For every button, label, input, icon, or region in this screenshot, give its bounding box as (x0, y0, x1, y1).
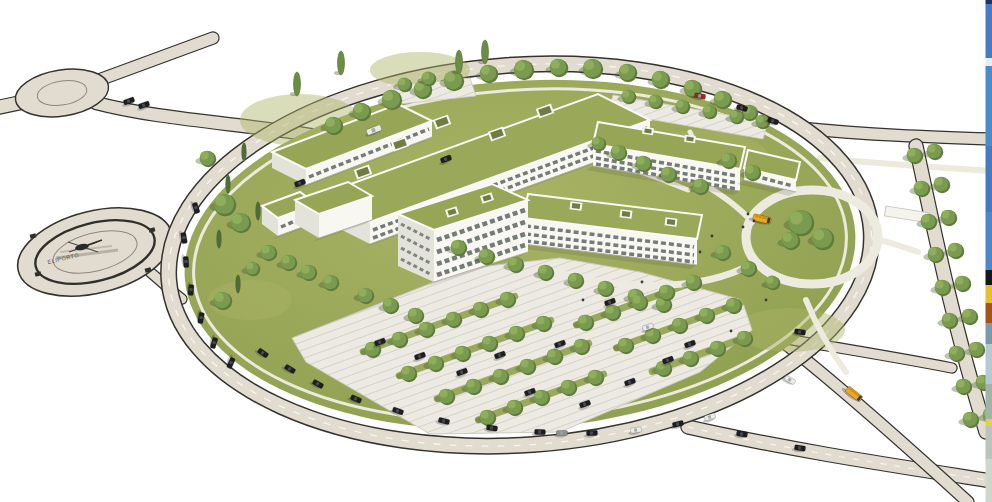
tree-highlight (579, 316, 587, 324)
pedestrian (765, 299, 768, 302)
tree-highlight (398, 78, 405, 85)
cypress-tree (225, 175, 230, 194)
pedestrian (582, 299, 585, 302)
tree-highlight (452, 241, 460, 249)
tree-highlight (383, 91, 393, 101)
tree-highlight (246, 262, 253, 269)
pedestrian (699, 251, 702, 254)
edge-strip-segment (986, 384, 992, 419)
tree-highlight (422, 72, 429, 79)
pedestrian (742, 226, 745, 229)
tree-highlight (950, 347, 958, 355)
tree-highlight (633, 296, 641, 304)
cypress-tree (255, 202, 260, 221)
tree-highlight (384, 299, 392, 307)
tree-highlight (956, 277, 964, 285)
edge-strip-segment (986, 4, 992, 58)
tree-highlight (746, 166, 754, 174)
tree-highlight (612, 146, 620, 154)
tree-highlight (715, 92, 724, 101)
poplar-tree (482, 40, 489, 64)
tree-highlight (537, 317, 545, 325)
tree-highlight (447, 313, 455, 321)
tree-highlight (402, 367, 410, 375)
tree-highlight (510, 327, 518, 335)
tree-highlight (700, 309, 708, 317)
tree-highlight (711, 342, 719, 350)
tree-highlight (813, 229, 824, 240)
tree-highlight (420, 323, 428, 331)
tree-highlight (584, 60, 594, 70)
tree-highlight (366, 343, 374, 351)
tree-highlight (521, 360, 529, 368)
edge-strip-segment (986, 426, 992, 459)
poplar-tree (294, 72, 301, 96)
tree-highlight (509, 258, 517, 266)
edge-strip-segment (986, 419, 992, 426)
skylight (570, 201, 583, 210)
tree-highlight (694, 180, 702, 188)
poplar-tree (338, 51, 345, 75)
tree-highlight (282, 256, 290, 264)
tree-highlight (703, 105, 710, 112)
tree-highlight (467, 380, 475, 388)
tree-highlight (354, 104, 363, 113)
tree-highlight (215, 195, 226, 206)
tree-highlight (922, 215, 930, 223)
cypress-tree (235, 275, 240, 294)
tree-highlight (637, 157, 645, 165)
edge-strip (986, 0, 992, 502)
tree-highlight (662, 168, 670, 176)
edge-strip-segment (986, 146, 992, 212)
cypress-tree (216, 230, 221, 249)
pedestrian (641, 281, 644, 284)
tree-highlight (685, 81, 694, 90)
tree-highlight (515, 61, 525, 71)
hospital-campus-aerial-rendering: ELIPORTO (0, 0, 992, 502)
tree-highlight (575, 340, 583, 348)
tree-highlight (653, 72, 662, 81)
skylight (665, 217, 678, 226)
tree-highlight (326, 118, 335, 127)
tree-highlight (936, 281, 944, 289)
tree-highlight (957, 380, 965, 388)
tree-highlight (393, 333, 401, 341)
tree-highlight (684, 352, 692, 360)
tree-highlight (649, 95, 656, 102)
tree-highlight (687, 276, 695, 284)
tree-highlight (201, 152, 209, 160)
tree-highlight (562, 381, 570, 389)
rendering-canvas: ELIPORTO (0, 0, 992, 502)
pedestrian (753, 220, 756, 223)
tree-highlight (942, 211, 950, 219)
tree-highlight (622, 90, 629, 97)
tree-highlight (481, 66, 490, 75)
tree-highlight (722, 154, 730, 162)
edge-strip-segment (986, 323, 992, 344)
tree-highlight (539, 266, 547, 274)
cypress-tree (241, 143, 246, 162)
edge-strip-segment (986, 459, 992, 502)
tree-highlight (727, 299, 735, 307)
tree-highlight (964, 413, 972, 421)
tree-highlight (943, 314, 951, 322)
tree-highlight (977, 376, 985, 384)
tree-highlight (232, 214, 242, 224)
tree-highlight (589, 371, 597, 379)
tree-highlight (474, 303, 482, 311)
tree-highlight (302, 266, 310, 274)
tree-highlight (673, 319, 681, 327)
tree-highlight (592, 137, 599, 144)
tree-highlight (548, 350, 556, 358)
edge-strip-segment (986, 270, 992, 285)
tree-highlight (908, 149, 916, 157)
edge-strip-segment (986, 212, 992, 270)
tree-highlight (569, 274, 577, 282)
tree-highlight (599, 282, 607, 290)
tree-highlight (970, 343, 978, 351)
tree-highlight (262, 246, 270, 254)
tree-highlight (481, 411, 489, 419)
tree-highlight (429, 357, 437, 365)
tree-highlight (440, 390, 448, 398)
pedestrian (747, 213, 750, 216)
tree-highlight (730, 110, 737, 117)
tree-highlight (456, 347, 464, 355)
tree-highlight (783, 233, 792, 242)
tree-highlight (676, 100, 683, 107)
tree-highlight (660, 286, 668, 294)
tree-highlight (935, 178, 943, 186)
edge-strip-segment (986, 0, 992, 4)
edge-strip-segment (986, 285, 992, 303)
pedestrian (730, 330, 733, 333)
pedestrian (711, 235, 714, 238)
edge-strip-segment (986, 303, 992, 323)
generated-scene (0, 0, 992, 502)
tree-highlight (949, 244, 957, 252)
tree-highlight (483, 337, 491, 345)
tree-highlight (929, 248, 937, 256)
tree-highlight (409, 309, 417, 317)
tree-highlight (494, 370, 502, 378)
tree-highlight (619, 339, 627, 347)
skylight (620, 209, 633, 218)
tree-highlight (756, 115, 763, 122)
edge-strip-segment (986, 344, 992, 384)
tree-highlight (324, 276, 332, 284)
tree-highlight (480, 250, 488, 258)
tree-highlight (738, 332, 746, 340)
tree-highlight (215, 293, 224, 302)
tree-highlight (790, 212, 803, 225)
tree-highlight (501, 293, 509, 301)
tree-highlight (742, 262, 750, 270)
tree-highlight (928, 145, 936, 153)
tree-highlight (620, 65, 629, 74)
tree-highlight (508, 401, 516, 409)
tree-highlight (551, 60, 560, 69)
tree-highlight (716, 246, 724, 254)
edge-strip-segment (986, 66, 992, 146)
tree-highlight (915, 182, 923, 190)
tree-highlight (359, 289, 367, 297)
poplar-tree (456, 50, 463, 74)
tree-highlight (766, 276, 773, 283)
tree-highlight (963, 310, 971, 318)
edge-strip-segment (986, 58, 992, 66)
